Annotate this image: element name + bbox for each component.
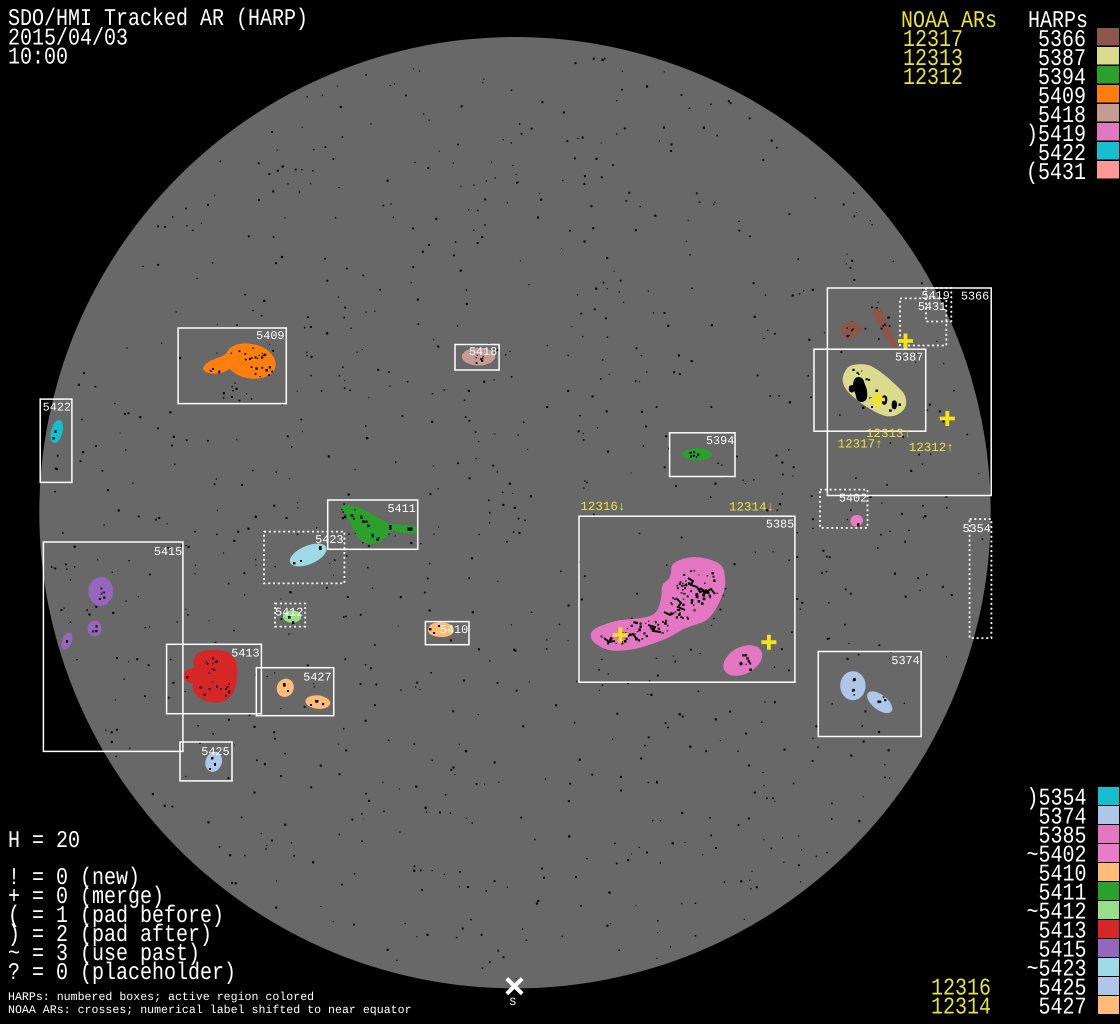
- svg-text:NOAA ARs: crosses; numerical l: NOAA ARs: crosses; numerical label shift…: [8, 1004, 412, 1017]
- svg-text:12312↑: 12312↑: [909, 441, 954, 455]
- svg-text:5394: 5394: [706, 434, 734, 448]
- svg-text:5409: 5409: [256, 329, 284, 343]
- svg-text:12312: 12312: [903, 65, 963, 93]
- svg-text:5423: 5423: [315, 533, 343, 547]
- svg-text:5425: 5425: [201, 745, 229, 759]
- svg-text:5411: 5411: [387, 502, 415, 516]
- svg-text:12317↑: 12317↑: [838, 437, 883, 451]
- svg-text:5366: 5366: [961, 289, 989, 303]
- svg-text:12314↓: 12314↓: [729, 500, 774, 514]
- svg-text:12314: 12314: [931, 994, 991, 1022]
- svg-text:5431: 5431: [918, 300, 946, 314]
- svg-text:? = 0 (placeholder): ? = 0 (placeholder): [8, 960, 236, 988]
- svg-text:5387: 5387: [895, 350, 923, 364]
- svg-text:5410: 5410: [440, 623, 468, 637]
- svg-text:5415: 5415: [154, 545, 182, 559]
- svg-text:10:00: 10:00: [8, 44, 68, 72]
- svg-text:5374: 5374: [891, 654, 919, 668]
- svg-text:5418: 5418: [469, 345, 497, 359]
- svg-text:5422: 5422: [43, 401, 71, 415]
- svg-text:5402: 5402: [839, 491, 867, 505]
- svg-text:5413: 5413: [231, 647, 259, 661]
- svg-text:(5431: (5431: [1026, 160, 1086, 188]
- svg-text:5427: 5427: [303, 670, 331, 684]
- svg-text:12316↓: 12316↓: [580, 500, 625, 514]
- svg-text:5354: 5354: [962, 522, 990, 536]
- svg-text:5385: 5385: [766, 517, 794, 531]
- svg-text:5412: 5412: [275, 606, 303, 620]
- svg-text:H = 20: H = 20: [8, 828, 80, 856]
- svg-text:S: S: [510, 997, 517, 1009]
- svg-text:5427: 5427: [1038, 994, 1086, 1022]
- svg-text:HARPs: numbered boxes; active: HARPs: numbered boxes; active region col…: [8, 991, 314, 1004]
